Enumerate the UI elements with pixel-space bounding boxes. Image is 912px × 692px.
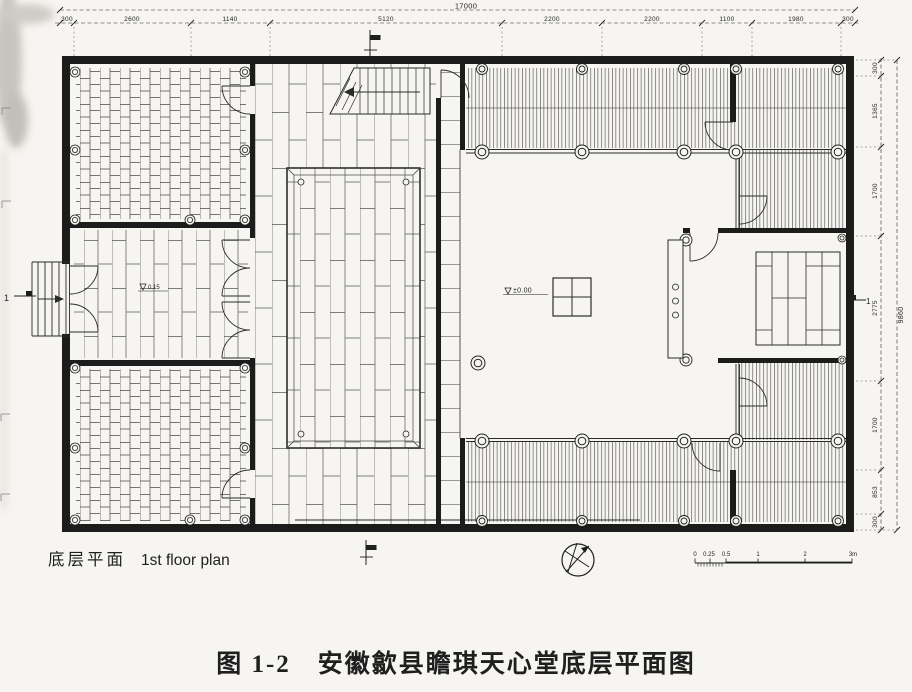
floor-plan-figure: ±0.00 0.15 17000 300 2600 1140 5120 2200… [0, 0, 912, 692]
dim-top-seg-8: 300 [842, 16, 854, 23]
dim-right-seg-0: 300 [872, 62, 879, 74]
entry-level-text: 0.15 [148, 285, 160, 291]
upper-left-room-brick-floor [76, 68, 246, 219]
scanned-floor-plan-page: ±0.00 0.15 17000 300 2600 1140 5120 2200… [0, 0, 912, 692]
dim-top-seg-6: 1100 [719, 16, 734, 23]
dim-right-seg-5: 853 [872, 486, 879, 498]
dim-right-seg-3: 2775 [872, 300, 879, 316]
dim-top-seg-2: 1140 [222, 16, 237, 23]
upper-right-room-plank-floor [736, 150, 848, 230]
plan-label-cn: 底层平面 [48, 550, 126, 569]
plan-label-en: 1st floor plan [141, 552, 230, 569]
dim-right-seg-2: 1700 [872, 183, 879, 199]
dim-right-seg-4: 1700 [872, 417, 879, 433]
section-right-label: 1 [866, 297, 871, 306]
scale-label-1: 0.25 [703, 552, 715, 558]
skywell [287, 168, 420, 448]
side-passage-floor [441, 64, 460, 524]
dim-right-overall: 9860 [898, 307, 905, 324]
dim-top-seg-0: 300 [61, 16, 73, 23]
scale-label-5: 3m [849, 552, 857, 558]
dim-top-overall: 17000 [455, 2, 477, 11]
dim-top-seg-7: 1980 [788, 16, 804, 23]
screen-panel [668, 240, 683, 358]
dim-top-seg-1: 2600 [124, 16, 140, 23]
figure-caption: 图 1-2 安徽歙县瞻琪天心堂底层平面图 [216, 649, 696, 678]
dim-right-seg-6: 300 [872, 516, 879, 528]
section-left-label: 1 [4, 293, 9, 303]
dim-top-seg-3: 5120 [378, 16, 394, 23]
scale-label-2: 0.5 [722, 552, 731, 558]
courtyard-level-text: ±0.00 [513, 288, 532, 295]
lower-left-room-brick-floor [76, 369, 246, 521]
dim-top-seg-5: 2200 [644, 16, 660, 23]
dim-right-seg-1: 1365 [872, 103, 879, 119]
dim-top-seg-4: 2200 [544, 16, 560, 23]
lower-right-room-plank-floor [736, 362, 848, 440]
